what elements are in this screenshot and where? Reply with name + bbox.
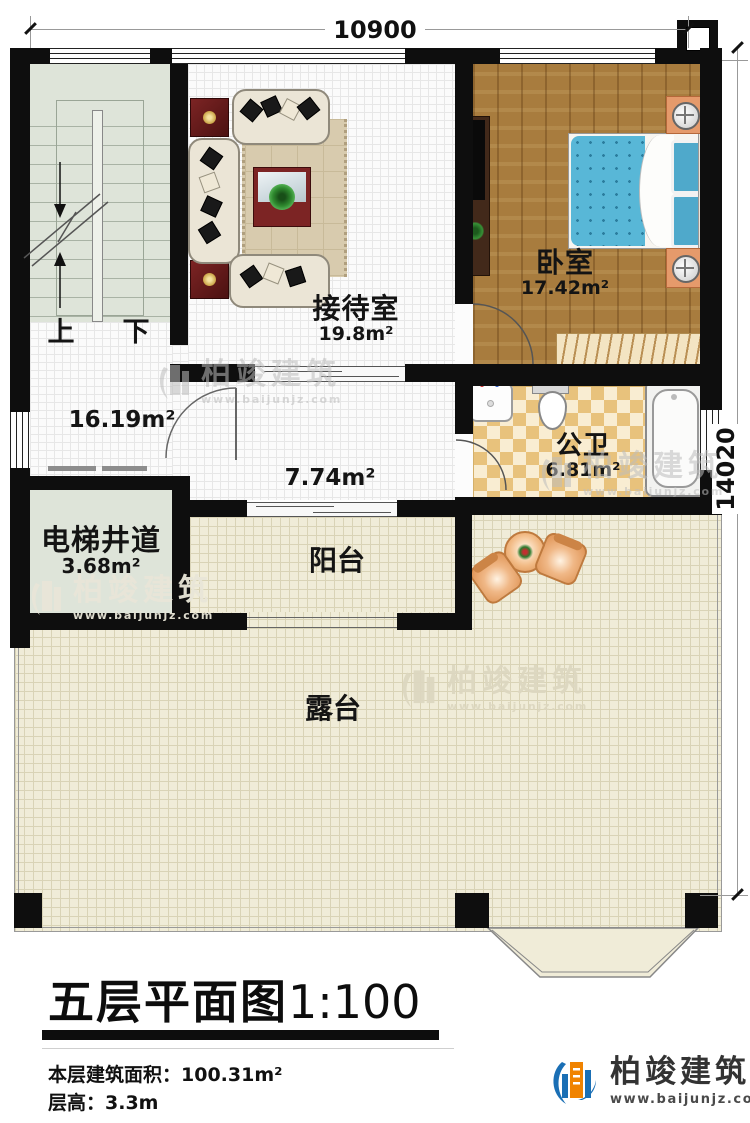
bathroom-label: 公卫 6.81m² bbox=[546, 432, 621, 481]
bedroom-window bbox=[500, 48, 655, 64]
duvet bbox=[639, 135, 674, 247]
top-extension-left bbox=[30, 16, 31, 48]
bathtub bbox=[645, 380, 706, 497]
floor-height-label: 层高： bbox=[48, 1092, 105, 1114]
lamp-detail bbox=[676, 114, 694, 116]
floor-height-value: 3.3m bbox=[105, 1092, 158, 1114]
brand-logo: 柏竣建筑 www.baijunjz.com bbox=[548, 1054, 750, 1110]
wall-stair-reception bbox=[170, 64, 188, 345]
sofa-pillow bbox=[285, 266, 306, 287]
right-extension-top bbox=[722, 60, 748, 61]
top-dimension-value: 10900 bbox=[325, 16, 425, 44]
side-table-top bbox=[190, 98, 229, 137]
terrace-column-right bbox=[685, 893, 718, 928]
wall-reception-bedroom bbox=[455, 64, 473, 304]
wall-balcony-right bbox=[455, 515, 472, 615]
stair-center-rail bbox=[92, 110, 103, 322]
elevator-name: 电梯井道 bbox=[41, 525, 161, 556]
sofa-left bbox=[188, 138, 240, 264]
wall-top-pier-1 bbox=[150, 48, 172, 64]
bathtub-inner bbox=[652, 389, 699, 488]
plan-scale: 1:100 bbox=[288, 975, 421, 1029]
reception-label: 接待室 19.8m² bbox=[312, 294, 399, 345]
reception-area: 19.8m² bbox=[312, 324, 399, 345]
wall-elevator-top bbox=[30, 476, 172, 490]
elevator-door-sill-right bbox=[102, 466, 147, 471]
balcony-railing bbox=[247, 617, 397, 628]
floor-plan-sheet: 上 下 16.19m² 7.74m² 接待室 19.8m² 卧室 17.42m²… bbox=[0, 0, 750, 1123]
bay-window bbox=[488, 928, 698, 977]
table-medallion bbox=[203, 111, 216, 124]
sofa-pillow bbox=[198, 221, 221, 244]
side-table-bottom bbox=[190, 260, 229, 299]
wall-right-upper bbox=[700, 48, 722, 410]
right-extension-bottom bbox=[700, 895, 748, 896]
hall-area-label: 16.19m² bbox=[69, 408, 176, 433]
bathroom-name: 公卫 bbox=[546, 432, 621, 460]
wall-left-upper bbox=[10, 48, 30, 412]
wall-bathroom-bottom bbox=[455, 497, 722, 515]
plan-title: 五层平面图1:100 bbox=[48, 966, 421, 1032]
sofa-pillow bbox=[262, 262, 284, 284]
sink bbox=[469, 382, 513, 422]
sofa-pillow bbox=[200, 147, 224, 171]
wall-elevator-right bbox=[172, 476, 190, 613]
right-dimension-value: 14020 bbox=[712, 424, 740, 514]
stairs-up-label: 上 bbox=[48, 318, 75, 347]
sofa-pillow bbox=[297, 97, 321, 121]
elevator-area: 3.68m² bbox=[41, 556, 161, 578]
bedroom-area: 17.42m² bbox=[521, 278, 609, 299]
mattress bbox=[571, 136, 645, 246]
wall-hall-corridor bbox=[170, 364, 255, 382]
lamp-detail bbox=[676, 267, 694, 269]
sofa-pillow bbox=[199, 172, 221, 194]
table-flower bbox=[517, 544, 533, 560]
floor-area-row: 本层建筑面积：100.31m² bbox=[48, 1060, 282, 1087]
bedroom-name: 卧室 bbox=[521, 248, 609, 278]
wall-bathroom-left bbox=[455, 386, 473, 434]
elevator-door-sill-left bbox=[48, 466, 96, 471]
bathroom-area: 6.81m² bbox=[546, 460, 621, 481]
balcony-label: 阳台 bbox=[309, 546, 365, 576]
reception-window bbox=[172, 48, 405, 64]
floor-area-value: 100.31m² bbox=[181, 1064, 282, 1086]
potted-plant bbox=[269, 184, 295, 210]
bedroom-label: 卧室 17.42m² bbox=[521, 248, 609, 299]
wall-bottom-right bbox=[397, 613, 472, 630]
wall-balcony-pier-left bbox=[190, 500, 247, 517]
reception-name: 接待室 bbox=[312, 294, 399, 324]
bathtub-drain bbox=[671, 394, 677, 400]
bathroom-door-opening bbox=[455, 434, 473, 497]
coffee-table bbox=[253, 167, 311, 227]
sofa-pillow bbox=[240, 265, 264, 289]
top-extension-right bbox=[688, 16, 689, 48]
nightstand-top bbox=[666, 96, 704, 134]
terrace-label: 露台 bbox=[305, 694, 361, 724]
brand-site: www.baijunjz.com bbox=[610, 1092, 750, 1107]
elevator-label: 电梯井道 3.68m² bbox=[41, 525, 161, 578]
title-underline-thick bbox=[42, 1030, 439, 1040]
wall-top-pier-2 bbox=[405, 48, 500, 64]
brand-logo-icon bbox=[548, 1054, 600, 1110]
floor-height-row: 层高：3.3m bbox=[48, 1088, 158, 1115]
corridor-area-label: 7.74m² bbox=[285, 466, 376, 491]
brand-name: 柏竣建筑 bbox=[610, 1057, 750, 1088]
balcony-sliding-door bbox=[247, 502, 397, 517]
hall-window bbox=[10, 412, 30, 468]
bedroom-door-opening bbox=[455, 304, 473, 364]
wall-bottom-left bbox=[10, 613, 247, 630]
double-bed bbox=[568, 133, 704, 249]
sofa-pillow bbox=[200, 195, 223, 218]
bay-window-inner-line bbox=[492, 930, 694, 972]
wardrobe bbox=[556, 333, 705, 367]
stair-window bbox=[50, 48, 150, 64]
sofa-pillow bbox=[260, 95, 283, 118]
title-underline-thin bbox=[42, 1048, 454, 1049]
stairs-down-label: 下 bbox=[123, 318, 150, 347]
nightstand-bottom bbox=[666, 248, 704, 288]
wall-bedroom-bathroom bbox=[455, 364, 722, 386]
sink-drain bbox=[487, 400, 494, 407]
table-lamp bbox=[672, 102, 700, 130]
table-medallion bbox=[203, 273, 216, 286]
plan-title-text: 五层平面图 bbox=[48, 975, 288, 1029]
table-lamp bbox=[672, 255, 700, 283]
reception-sliding-door bbox=[255, 366, 405, 382]
sofa-top bbox=[232, 89, 330, 145]
terrace-column-middle bbox=[455, 893, 489, 928]
tv bbox=[473, 120, 485, 200]
terrace-column-left bbox=[14, 893, 42, 928]
floor-area-label: 本层建筑面积： bbox=[48, 1064, 181, 1086]
